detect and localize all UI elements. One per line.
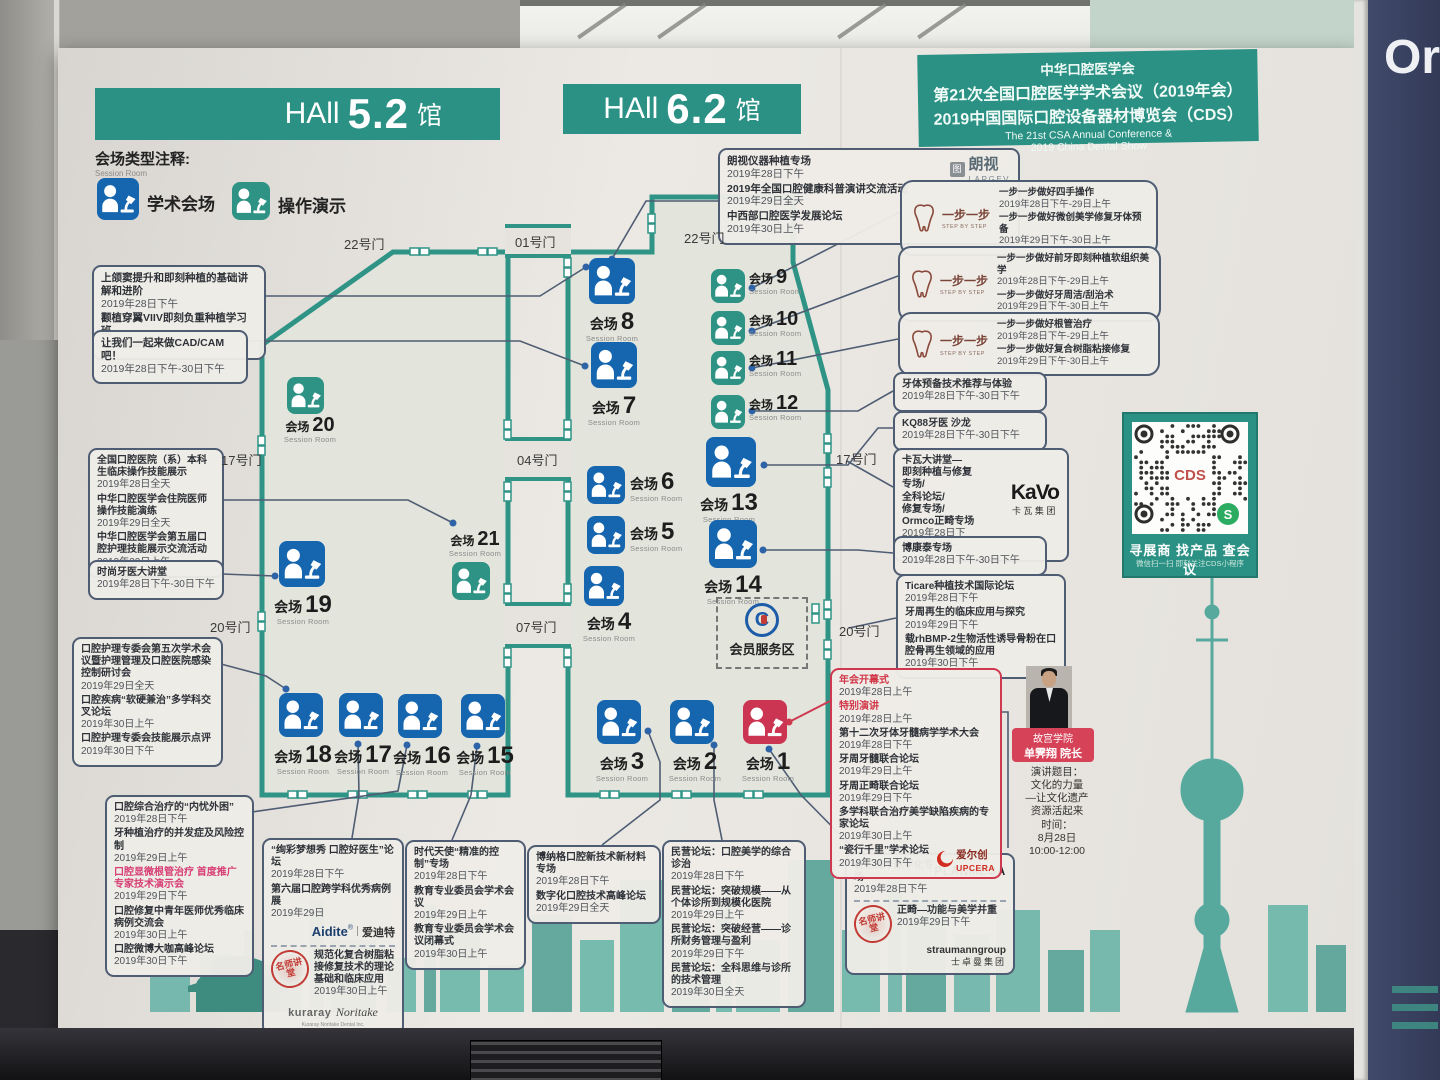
session-entry: 多学科联合治疗美学缺陷疾病的专家论坛2019年30日上午 (839, 807, 993, 844)
session-entry: 牙体预备技术推荐与体验2019年28日下午-30日下午 (902, 379, 1038, 403)
session-title: 牙体预备技术推荐与体验 (902, 379, 1038, 391)
member-area-label: 会员服务区 (718, 639, 806, 658)
divider (854, 900, 1006, 902)
session-title: 一步一步做好四手操作 (999, 187, 1149, 199)
step-logo-cn: 一步一步 (942, 208, 990, 222)
session-entry: 牙周牙髓联合论坛2019年29日上午 (839, 754, 993, 778)
svg-text:CDS: CDS (1174, 467, 1206, 484)
session-entry: 载rhBMP-2生物活性诱导骨粉在口腔骨再生领域的应用2019年30日下午 (905, 634, 1057, 671)
session-title: 规范化复合树脂粘接修复技术的理论基础和临床应用 (314, 950, 395, 987)
annotation-box-step-2: 一步一步STEP BY STEP 一步一步做好前牙即刻种植软组织美学2019年2… (898, 246, 1161, 322)
session-title: 时代天使“精准的控制”专场 (414, 847, 517, 871)
session-room-2-icon (670, 700, 714, 744)
session-entry: 民营论坛：突破经营——诊所财务管理与盈利2019年29日下午 (671, 924, 797, 961)
session-room-19-label: 会场19Session Room (255, 591, 351, 626)
door-label: 17号门 (221, 450, 261, 469)
qr-subtitle: 微信扫一扫 即刻关注CDS小程序 (1124, 558, 1256, 569)
session-date: 2019年29日 (271, 908, 395, 920)
session-room-15-icon (461, 694, 505, 738)
session-date: 2019年29日上午 (414, 910, 517, 922)
annotation-box-ticare: Ticare种植技术国际论坛2019年28日下午牙周再生的临床应用与探究2019… (896, 574, 1066, 679)
session-title: Ormco正畸专场 (902, 516, 975, 528)
session-date: 2019年30日上午 (839, 831, 993, 843)
session-title: 卡瓦大讲堂— (902, 455, 975, 467)
straumann-logo-cn: 士卓曼集团 (854, 957, 1006, 968)
session-room-14-label: 会场14Session Room (685, 571, 781, 606)
session-date: 2019年29日下午 (897, 917, 1006, 929)
session-room-20-label: 会场20Session Room (262, 414, 358, 444)
speaker-lecture-info: 演讲题目： 文化的力量 —让文化遗产 资源活起来 时间： 8月28日 10:00… (1014, 766, 1100, 858)
upcera-crescent-icon (937, 851, 953, 867)
session-title: 让我们一起来做CAD/CAM吧！ (101, 337, 239, 363)
session-date: 2019年29日上午 (839, 766, 993, 778)
qr-code-panel: CDSS 寻展商 找产品 查会议 微信扫一扫 即刻关注CDS小程序 (1122, 412, 1258, 578)
session-date: 2019年28日下午 (414, 871, 517, 883)
session-date: 2019年29日上午 (114, 853, 245, 865)
session-room-16-icon (398, 694, 442, 738)
session-room-10-label: 会场10Session Room (749, 308, 801, 338)
floorplan-board: HAll 5.2 馆 HAll 6.2 馆 中华口腔医学会 第21次全国口腔医学… (58, 48, 1358, 1032)
session-date: 2019年28日下午-30日下午 (101, 363, 239, 376)
session-entry: KQ88牙医 沙龙2019年28日下午-30日下午 (902, 418, 1038, 442)
door-label: 01号门 (515, 232, 555, 251)
session-entry: 牙周再生的临床应用与探究2019年29日下午 (905, 607, 1057, 631)
session-title: 即刻种植与修复专场/ (902, 467, 975, 491)
aidite-logo-en: Aidite (312, 924, 348, 939)
session-entry: 牙种植治疗的并发症及风险控制2019年29日上午 (114, 828, 245, 865)
session-room-13-icon (706, 437, 756, 487)
session-entry: 博纳格口腔新技术新材料专场2019年28日下午 (536, 852, 652, 889)
session-room-7-label: 会场7Session Room (566, 392, 662, 427)
annotation-box-tooth-prep: 牙体预备技术推荐与体验2019年28日下午-30日下午 (893, 372, 1047, 412)
session-title: 第十二次牙体牙髓病学学术大会 (839, 728, 993, 740)
session-title: 中华口腔医学会住院医师操作技能演练 (97, 494, 215, 518)
speaker-line: 演讲题目： (1014, 766, 1100, 779)
session-date: 2019年29日全天 (536, 903, 652, 915)
kavo-logo-cn: 卡瓦集团 (1011, 506, 1059, 517)
ceiling-glass-green (1090, 0, 1360, 48)
speaker-line: 资源活起来 (1014, 805, 1100, 818)
session-room-4-label: 会场4Session Room (561, 608, 657, 643)
session-date: 2019年29日全天 (81, 681, 214, 693)
session-date: 2019年28日下午 (839, 740, 993, 752)
session-room-6-icon (587, 466, 625, 504)
door-label: 07号门 (516, 617, 556, 636)
session-entry: 数字化口腔技术高峰论坛2019年29日全天 (536, 891, 652, 915)
session-date: 2019年28日上午 (839, 687, 993, 699)
session-date: 2019年30日上午 (81, 719, 214, 731)
session-date: 2019年30日上午 (414, 949, 517, 961)
hall-6-2-title-bar: HAll 6.2 馆 (563, 84, 801, 134)
session-entry: 上颌窦提升和即刻种植的基础讲解和进阶2019年28日下午 (101, 272, 257, 310)
step-by-step-logo: 一步一步STEP BY STEP (907, 319, 991, 369)
session-entry: 全科论坛/ (902, 492, 975, 504)
floor (0, 1028, 1440, 1080)
hall-title-post: 馆 (417, 96, 442, 132)
step-by-step-logo: 一步一步STEP BY STEP (907, 253, 991, 315)
session-entry: 年会开幕式2019年28日上午 (839, 675, 993, 699)
navy-banner-panel (1368, 0, 1440, 1080)
fine-print-line (1392, 1004, 1438, 1011)
session-title: 中华口腔医学会第五届口腔护理技能展示交流活动 (97, 532, 215, 556)
session-room-1-icon (743, 700, 787, 744)
session-title: 口腔综合治疗的“内忧外困” (114, 802, 245, 814)
session-title: 博康泰专场 (902, 543, 1038, 555)
session-title: 教育专业委员会学术会议 (414, 886, 517, 910)
session-entry: 牙周正畸联合论坛2019年29日下午 (839, 781, 993, 805)
door-label: 20号门 (839, 621, 879, 640)
session-date: 2019年28日下午 (101, 298, 257, 311)
session-title: 载rhBMP-2生物活性诱导骨粉在口腔骨再生领域的应用 (905, 634, 1057, 658)
straumann-logo: straumanngroup 士卓曼集团 (854, 945, 1006, 968)
fine-print-line (1392, 1022, 1438, 1029)
speaker-photo (1026, 666, 1072, 728)
session-entry: 一步一步做好牙周洁/刮治术2019年29日下午-30日上午 (997, 290, 1152, 313)
kavo-logo-en: KaVo (1011, 480, 1059, 506)
session-title: 数字化口腔技术高峰论坛 (536, 891, 652, 903)
session-room-13-label: 会场13Session Room (681, 489, 777, 524)
session-date: 2019年28日下午 (671, 871, 797, 883)
session-title: 牙种植治疗的并发症及风险控制 (114, 828, 245, 852)
session-entry: 民营论坛：口腔美学的综合诊治2019年28日下午 (671, 847, 797, 884)
session-date: 2019年28日下午 (905, 593, 1057, 605)
session-title: Ticare种植技术国际论坛 (905, 581, 1057, 593)
member-service-area: C 会员服务区 (716, 597, 808, 669)
upcera-logo: 爱尔创 UPCERA (937, 844, 995, 874)
session-entry: 口腔疾病“软硬兼治”多学科交叉论坛2019年30日上午 (81, 695, 214, 732)
session-title: 博纳格口腔新技术新材料专场 (536, 852, 652, 876)
annotation-box-fashion-dentist: 时尚牙医大讲堂2019年28日下午-30日下午 (88, 560, 224, 600)
academic-session-icon (97, 178, 139, 220)
largev-logo-cn: 朗视 (969, 156, 999, 173)
session-entry: 修复专场/ (902, 504, 975, 516)
session-room-14-icon (709, 520, 757, 568)
session-date: 2019年28日下午 (854, 884, 1006, 896)
qr-code: CDSS (1132, 422, 1248, 534)
session-title: 教育专业委员会学术会议闭幕式 (414, 924, 517, 948)
session-room-17-icon (339, 693, 383, 737)
session-title: 一步一步做好前牙即刻种植软组织美学 (997, 253, 1152, 276)
legend-academic-label: 学术会场 (147, 190, 215, 215)
session-room-3-icon (597, 700, 641, 744)
door-label: 22号门 (344, 234, 384, 253)
step-by-step-logo: 一步一步STEP BY STEP (909, 187, 993, 249)
session-date: 2019年28日下午-30日下午 (902, 391, 1038, 403)
annotation-box-angelalign-education: 时代天使“精准的控制”专场2019年28日下午教育专业委员会学术会议2019年2… (405, 840, 526, 970)
session-entry: 口腔修复中青年医师优秀临床病例交流会2019年30日上午 (114, 906, 245, 943)
legend-title-wrap: 会场类型注释: Session Room (95, 148, 190, 178)
floor-grate (470, 1040, 662, 1080)
annotation-box-aidite-kuraray: “绚彩梦想秀 口腔好医生”论坛2019年28日下午 第六届口腔跨学科优秀病例展2… (262, 838, 404, 1035)
fine-print-line (1392, 986, 1438, 993)
session-room-7-icon (591, 342, 637, 388)
session-date: 2019年28日下午-29日上午 (997, 331, 1130, 343)
session-date: 2019年28日下午-30日下午 (97, 579, 215, 591)
session-date: 2019年29日下午 (905, 620, 1057, 632)
session-room-19-icon (279, 541, 325, 587)
session-room-8-label: 会场8Session Room (564, 308, 660, 343)
door-label: 04号门 (517, 450, 557, 469)
session-entry: 即刻种植与修复专场/ (902, 467, 975, 491)
speaker-org: 故宫学院 (1012, 730, 1094, 745)
session-entry: 第十二次牙体牙髓病学学术大会2019年28日下午 (839, 728, 993, 752)
csa-emblem-accent (761, 615, 767, 624)
session-title: 口腔护理专委会技能展示点评 (81, 733, 214, 745)
csa-emblem: C (745, 603, 779, 637)
session-title: 一步一步做好牙周洁/刮治术 (997, 290, 1152, 302)
session-room-5-icon (587, 516, 625, 554)
speaker-line: 8月28日 (1014, 832, 1100, 845)
session-date: 2019年29日下午-30日上午 (997, 356, 1130, 368)
session-date: 2019年30日上午 (114, 930, 245, 942)
session-entry: 时代天使“精准的控制”专场2019年28日下午 (414, 847, 517, 884)
banner-text: Or (1384, 30, 1440, 85)
session-date: 2019年29日上午 (671, 910, 797, 922)
photo-of-conference-floorplan-board: HAll 5.2 馆 HAll 6.2 馆 中华口腔医学会 第21次全国口腔医学… (0, 0, 1440, 1080)
session-title: 民营论坛：突破经营——诊所财务管理与盈利 (671, 924, 797, 948)
aidite-logo-cn: 爱迪特 (362, 927, 395, 939)
session-title: 牙周正畸联合论坛 (839, 781, 993, 793)
session-room-10-icon (711, 311, 745, 345)
step-logo-en: STEP BY STEP (940, 351, 988, 358)
session-entry: 中华口腔医学会住院医师操作技能演练2019年29日全天 (97, 494, 215, 531)
concrete-wall (0, 0, 520, 52)
svg-text:S: S (1224, 507, 1233, 522)
session-room-3-label: 会场3Session Room (574, 748, 670, 783)
session-room-21-label: 会场21Session Room (427, 528, 523, 558)
hall-title-pre: HAll (603, 92, 658, 126)
session-title: 口腔疾病“软硬兼治”多学科交叉论坛 (81, 695, 214, 719)
speaker-line: 10:00-12:00 (1014, 845, 1100, 858)
session-entry: 教育专业委员会学术会议2019年29日上午 (414, 886, 517, 923)
session-room-9-icon (711, 269, 745, 303)
straumann-logo-en: straumanngroup (854, 945, 1006, 957)
session-room-5-label: 会场5Session Room (630, 518, 682, 553)
speaker-line: —让文化遗产 (1014, 792, 1100, 805)
annotation-box-comprehensive: 口腔综合治疗的“内忧外困”2019年28日下午牙种植治疗的并发症及风险控制201… (105, 795, 254, 977)
session-title: 民营论坛：全科思维与诊所的技术管理 (671, 963, 797, 987)
noritake-logo-text: Noritake (336, 1005, 378, 1019)
kavo-logo: KaVo 卡瓦集团 (1011, 480, 1059, 517)
step-logo-en: STEP BY STEP (940, 290, 988, 297)
session-entry: 让我们一起来做CAD/CAM吧！2019年28日下午-30日下午 (101, 337, 239, 375)
session-room-12-label: 会场12Session Room (749, 392, 801, 422)
session-title: 口腔修复中青年医师优秀临床病例交流会 (114, 906, 245, 930)
session-date: 2019年30日上午 (314, 986, 395, 998)
kuraray-noritake-logo: kuraray Noritake Kuraray Noritake Dental… (271, 1002, 395, 1028)
hall-title-num: 5.2 (348, 90, 409, 138)
session-room-8-icon (589, 258, 635, 304)
hall-title-num: 6.2 (666, 85, 727, 133)
session-room-4-icon (584, 566, 624, 606)
annotation-box-bonage: 博纳格口腔新技术新材料专场2019年28日下午数字化口腔技术高峰论坛2019年2… (527, 845, 661, 924)
session-room-11-label: 会场11Session Room (749, 348, 801, 378)
session-title: 修复专场/ (902, 504, 975, 516)
session-title: “绚彩梦想秀 口腔好医生”论坛 (271, 845, 395, 869)
annotation-box-kq88: KQ88牙医 沙龙2019年28日下午-30日下午 (893, 411, 1047, 451)
session-date: 2019年29日全天 (97, 518, 215, 530)
session-title: 一步一步做好复合树脂粘接修复 (997, 344, 1130, 356)
step-logo-cn: 一步一步 (940, 274, 988, 288)
speaker-face (1042, 671, 1056, 687)
session-title: KQ88牙医 沙龙 (902, 418, 1038, 430)
session-title: 一步一步做好微创美学修复牙体预备 (999, 212, 1149, 235)
white-pillar (1354, 0, 1368, 1080)
expo-title-cn: 2019中国国际口腔设备器材博览会（CDS） (918, 100, 1258, 130)
session-title: 民营论坛：口腔美学的综合诊治 (671, 847, 797, 871)
annotation-box-opening-ceremony: 爱尔创 UPCERA 年会开幕式2019年28日上午特别演讲2019年28日上午… (830, 668, 1002, 879)
upcera-logo-en: UPCERA (956, 863, 995, 873)
step-logo-en: STEP BY STEP (942, 224, 990, 231)
demo-session-icon (232, 182, 270, 220)
session-entry: 口腔显微根管治疗 首度推广专家技术演示会2019年29日下午 (114, 867, 245, 904)
session-entry: 教育专业委员会学术会议闭幕式2019年30日上午 (414, 924, 517, 961)
session-title: 全国口腔医院（系）本科生临床操作技能展示 (97, 455, 215, 479)
largev-logo-icon: 图 (950, 162, 965, 177)
session-entry: 口腔微博大咖高峰论坛2019年30日下午 (114, 944, 245, 968)
session-title: 一步一步做好根管治疗 (997, 319, 1130, 331)
session-title: 上颌窦提升和即刻种植的基础讲解和进阶 (101, 272, 257, 298)
session-entry: 口腔护理专委会第五次学术会议暨护理管理及口腔医院感染控制研讨会2019年29日全… (81, 644, 214, 693)
session-room-12-icon (711, 395, 745, 429)
session-entry: 一步一步做好微创美学修复牙体预备2019年29日下午-30日上午 (999, 212, 1149, 247)
session-date: 2019年30日全天 (671, 987, 797, 999)
session-date: 2019年29日下午 (839, 793, 993, 805)
conference-header: 中华口腔医学会 第21次全国口腔医学学术会议（2019年会） 2019中国国际口… (917, 49, 1259, 147)
annotation-box-nursing: 口腔护理专委会第五次学术会议暨护理管理及口腔医院感染控制研讨会2019年29日全… (72, 637, 223, 767)
session-room-20-icon (287, 377, 324, 414)
door-label: 22号门 (684, 228, 724, 247)
hall-title-post: 馆 (736, 91, 761, 127)
session-title: 口腔微博大咖高峰论坛 (114, 944, 245, 956)
upcera-logo-cn: 爱尔创 (956, 849, 988, 861)
session-date: 2019年29日下午 (114, 891, 245, 903)
session-entry: 时尚牙医大讲堂2019年28日下午-30日下午 (97, 567, 215, 591)
session-date: 2019年28日下午 (536, 876, 652, 888)
mingshi-seal-logo: 名师讲堂 (850, 901, 896, 947)
session-entry: 一步一步做好复合树脂粘接修复2019年29日下午-30日上午 (997, 344, 1130, 367)
session-title: 特别演讲 (839, 701, 993, 713)
door-label: 17号门 (836, 449, 876, 468)
session-room-11-icon (711, 351, 745, 385)
session-date: 2019年29日下午 (671, 949, 797, 961)
session-entry: 民营论坛：全科思维与诊所的技术管理2019年30日全天 (671, 963, 797, 1000)
session-room-9-label: 会场9Session Room (749, 266, 801, 296)
session-entry: 卡瓦大讲堂— (902, 455, 975, 467)
session-date: 2019年30日下午 (114, 956, 245, 968)
session-entry: 特别演讲2019年28日上午 (839, 701, 993, 725)
legend-subtitle: Session Room (95, 169, 190, 178)
session-room-21-icon (452, 562, 490, 600)
hall-title-pre: HAll (285, 97, 340, 131)
annotation-box-step-3: 一步一步STEP BY STEP 一步一步做好根管治疗2019年28日下午-29… (898, 312, 1160, 376)
session-title: 牙周再生的临床应用与探究 (905, 607, 1057, 619)
session-entry: Ticare种植技术国际论坛2019年28日下午 (905, 581, 1057, 605)
session-entry: 口腔护理专委会技能展示点评2019年30日下午 (81, 733, 214, 757)
speaker-line: 时间： (1014, 819, 1100, 832)
annotation-box-bokangtai: 博康泰专场2019年28日下午-30日下午 (893, 536, 1047, 576)
door-label: 20号门 (210, 617, 250, 636)
session-date: 2019年28日全天 (97, 479, 215, 491)
session-title: 年会开幕式 (839, 675, 993, 687)
session-title: 口腔显微根管治疗 首度推广专家技术演示会 (114, 867, 245, 891)
aidite-logo: Aidite®爱迪特 (271, 922, 395, 942)
session-title: 正畸—功能与美学并重 (897, 905, 1006, 917)
session-title: 第六届口腔跨学科优秀病例展 (271, 884, 395, 908)
session-date: 2019年28日上午 (839, 714, 993, 726)
annotation-box-private-forum: 民营论坛：口腔美学的综合诊治2019年28日下午民营论坛：突破规模——从个体诊所… (662, 840, 806, 1008)
mingshi-seal-logo: 名师讲堂 (267, 946, 313, 992)
step-logo-cn: 一步一步 (940, 334, 988, 348)
session-title: 多学科联合治疗美学缺陷疾病的专家论坛 (839, 807, 993, 831)
session-entry: 口腔综合治疗的“内忧外困”2019年28日下午 (114, 802, 245, 826)
session-entry: 一步一步做好根管治疗2019年28日下午-29日上午 (997, 319, 1130, 342)
speaker-name: 单霁翔 院长 (1012, 745, 1094, 761)
session-date: 2019年28日下午-30日下午 (902, 430, 1038, 442)
session-date: 2019年28日下午-29日上午 (997, 276, 1152, 288)
annotation-box-skill-demo: 全国口腔医院（系）本科生临床操作技能展示2019年28日全天中华口腔医学会住院医… (88, 448, 224, 578)
kuraray-logo-text: kuraray (288, 1007, 331, 1019)
session-title: 全科论坛/ (902, 492, 975, 504)
speaker-badge: 故宫学院 单霁翔 院长 (1012, 728, 1094, 762)
divider (271, 945, 395, 947)
hall-5-2-title-bar: HAll 5.2 馆 (95, 88, 500, 140)
session-title: 牙周牙髓联合论坛 (839, 754, 993, 766)
annotation-box-cadcam: 让我们一起来做CAD/CAM吧！2019年28日下午-30日下午 (92, 330, 248, 384)
session-room-18-icon (279, 693, 323, 737)
session-entry: 一步一步做好四手操作2019年28日下午-29日上午 (999, 187, 1149, 210)
session-date: 2019年28日下午-30日下午 (902, 555, 1038, 567)
session-entry: 全国口腔医院（系）本科生临床操作技能展示2019年28日全天 (97, 455, 215, 492)
session-date: 2019年28日下午-29日上午 (999, 199, 1149, 211)
session-date: 2019年28日下午 (271, 869, 395, 881)
session-entry: 博康泰专场2019年28日下午-30日下午 (902, 543, 1038, 567)
session-room-18-label: 会场18Session Room (255, 741, 351, 776)
annotation-box-step-1: 一步一步STEP BY STEP 一步一步做好四手操作2019年28日下午-29… (900, 180, 1158, 256)
session-title: 口腔护理专委会第五次学术会议暨护理管理及口腔医院感染控制研讨会 (81, 644, 214, 681)
session-date: 2019年30日下午 (81, 746, 214, 758)
concrete-column (0, 0, 60, 340)
session-entry: 民营论坛：突破规模——从个体诊所到规模化医院2019年29日上午 (671, 886, 797, 923)
legend-demo-label: 操作演示 (278, 192, 346, 217)
session-entry: 一步一步做好前牙即刻种植软组织美学2019年28日下午-29日上午 (997, 253, 1152, 288)
session-title: 时尚牙医大讲堂 (97, 567, 215, 579)
session-date: 2019年28日下午 (114, 814, 245, 826)
session-title: 民营论坛：突破规模——从个体诊所到规模化医院 (671, 886, 797, 910)
legend-title: 会场类型注释: (95, 148, 190, 169)
speaker-line: 文化的力量 (1014, 779, 1100, 792)
session-room-6-label: 会场6Session Room (630, 468, 682, 503)
